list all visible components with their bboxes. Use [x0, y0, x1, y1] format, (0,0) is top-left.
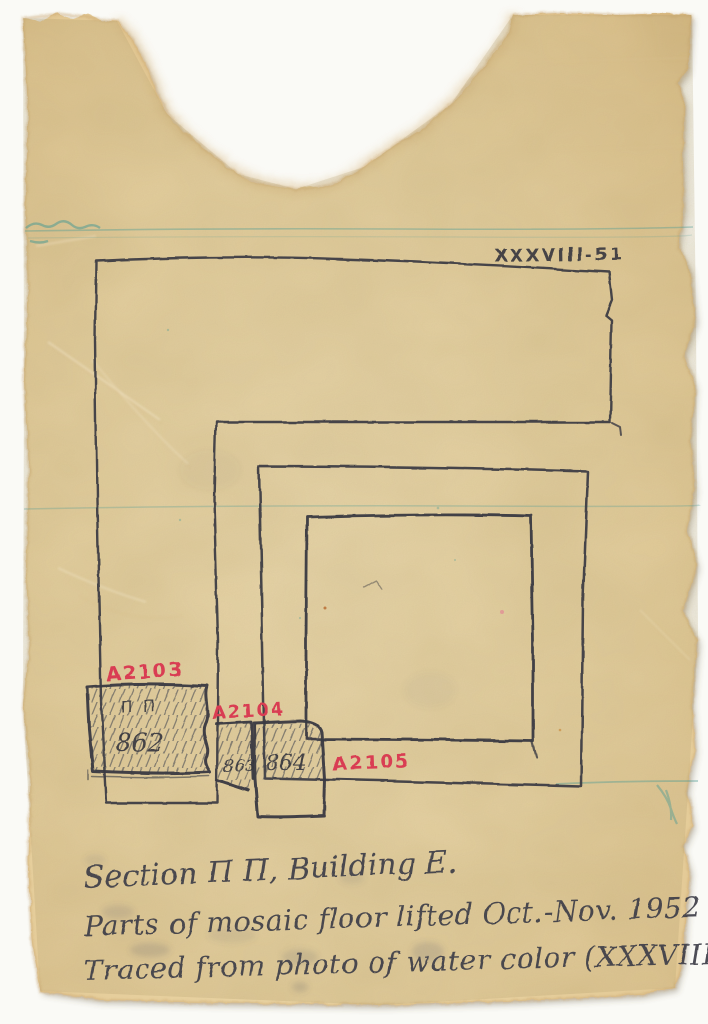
panel-863-number: 863: [223, 757, 255, 777]
panel-864-number: 864: [266, 751, 306, 775]
find-label-a2104: A2104: [211, 699, 286, 724]
find-label-a2105: A2105: [332, 750, 410, 775]
scan-canvas: XXXVIII-51 A2103 Π Π 862 A2104 863 A2105…: [0, 0, 708, 1024]
panel-863-hatch: [217, 722, 253, 790]
panel-862-number: 862: [116, 728, 164, 757]
rust-speck-2: [559, 729, 562, 732]
plate-number: XXXVIII-51: [494, 245, 625, 267]
pink-speck: [500, 610, 504, 614]
rust-speck: [324, 607, 327, 610]
scanned-document: XXXVIII-51 A2103 Π Π 862 A2104 863 A2105…: [0, 0, 708, 1024]
mosaic-panel-863: [216, 722, 253, 790]
panel-862-section-mark: Π Π: [121, 698, 157, 716]
